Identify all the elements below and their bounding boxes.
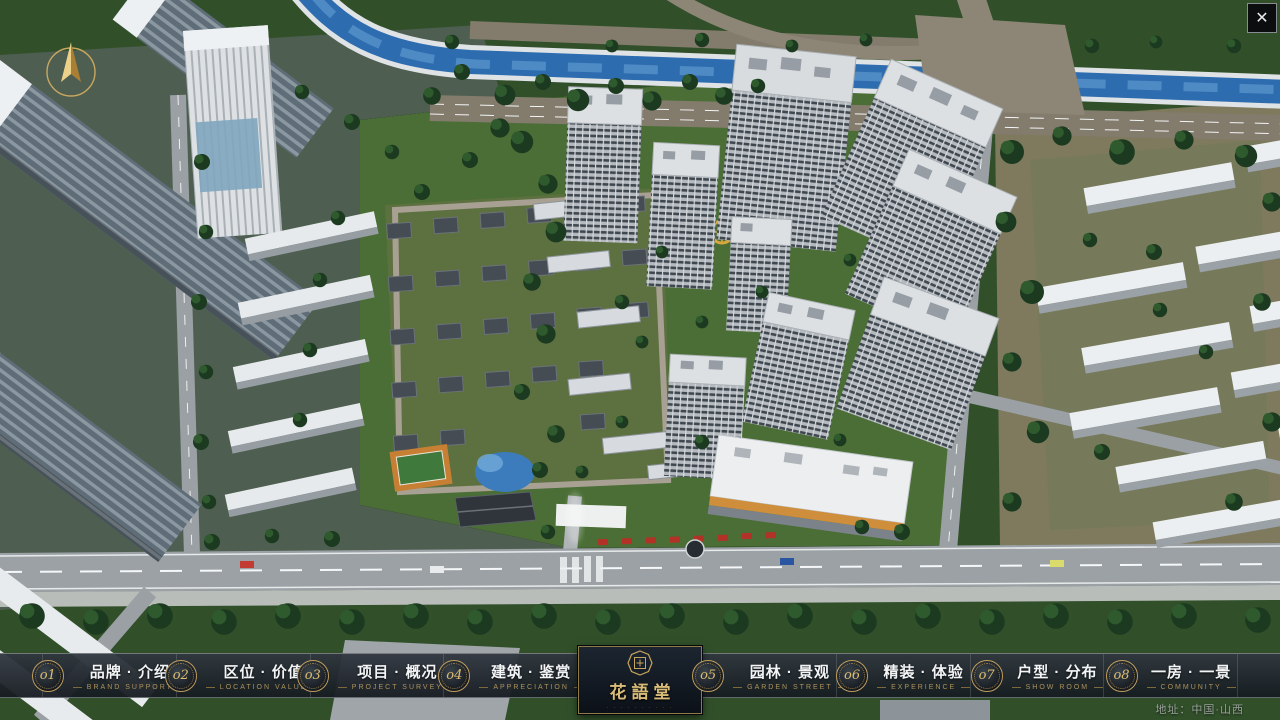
logo-title: 花語堂 <box>605 678 676 703</box>
nav-item-garden[interactable]: o5 园林 · 景观GARDEN STREET <box>702 654 836 697</box>
nav-item-architecture[interactable]: o4 建筑 · 鉴赏APPRECIATION <box>443 654 577 697</box>
nav-medallion: o1 <box>32 660 64 692</box>
nav-medallion: o3 <box>297 660 329 692</box>
nav-item-location[interactable]: o2 区位 · 价值LOCATION VALUE <box>176 654 310 697</box>
nav-medallion: o6 <box>836 660 868 692</box>
nav-label-en: COMMUNITY <box>1161 684 1222 691</box>
nav-medallion: o4 <box>438 660 470 692</box>
nav-label-zh: 项目 · 概况 <box>357 661 437 682</box>
nav-medallion: o5 <box>692 660 724 692</box>
logo-slot: 花語堂 · · · · · · · · · · <box>577 654 702 697</box>
nav-item-views[interactable]: o8 一房 · 一景COMMUNITY <box>1103 654 1238 697</box>
nav-medallion: o7 <box>971 660 1003 692</box>
presentation-screen: ✕ o1 品牌 · 介绍BRAND SUPPORT o2 区位 · 价值LOCA… <box>0 0 1280 720</box>
nav-label-en: GARDEN STREET <box>747 684 833 691</box>
nav-label-en: PROJECT SURVEY <box>352 684 443 691</box>
close-icon: ✕ <box>1255 8 1268 28</box>
nav-item-brand[interactable]: o1 品牌 · 介绍BRAND SUPPORT <box>42 654 176 697</box>
nav-item-project[interactable]: o3 项目 · 概况PROJECT SURVEY <box>310 654 444 697</box>
nav-label-zh: 品牌 · 介绍 <box>90 661 170 682</box>
nav-label-zh: 精装 · 体验 <box>883 661 963 682</box>
masterplan-render-viewport[interactable] <box>0 0 1280 720</box>
nav-label-en: SHOW ROOM <box>1026 684 1090 691</box>
masterplan-scene <box>0 0 1280 720</box>
close-button[interactable]: ✕ <box>1247 3 1277 33</box>
nav-label-zh: 一房 · 一景 <box>1151 661 1231 682</box>
nav-label-zh: 区位 · 价值 <box>223 661 303 682</box>
nav-label-zh: 建筑 · 鉴赏 <box>491 661 571 682</box>
nav-label-zh: 园林 · 景观 <box>750 661 830 682</box>
nav-medallion: o8 <box>1106 660 1138 692</box>
nav-label-en: LOCATION VALUE <box>220 684 308 691</box>
nav-label-en: EXPERIENCE <box>891 684 956 691</box>
nav-label-en: APPRECIATION <box>493 684 569 691</box>
nav-label-en: BRAND SUPPORT <box>87 684 173 691</box>
project-address: 地址：中国·山西 <box>1155 701 1244 717</box>
project-logo[interactable]: 花語堂 · · · · · · · · · · <box>578 646 702 714</box>
north-compass-icon <box>40 36 102 100</box>
logo-tagline: · · · · · · · · · · <box>606 705 673 711</box>
seal-emblem-icon <box>627 650 653 676</box>
bottom-navbar: o1 品牌 · 介绍BRAND SUPPORT o2 区位 · 价值LOCATI… <box>0 653 1280 698</box>
nav-medallion: o2 <box>165 660 197 692</box>
nav-item-interior[interactable]: o6 精装 · 体验EXPERIENCE <box>836 654 970 697</box>
nav-item-floorplans[interactable]: o7 户型 · 分布SHOW ROOM <box>970 654 1104 697</box>
nav-label-zh: 户型 · 分布 <box>1017 661 1097 682</box>
